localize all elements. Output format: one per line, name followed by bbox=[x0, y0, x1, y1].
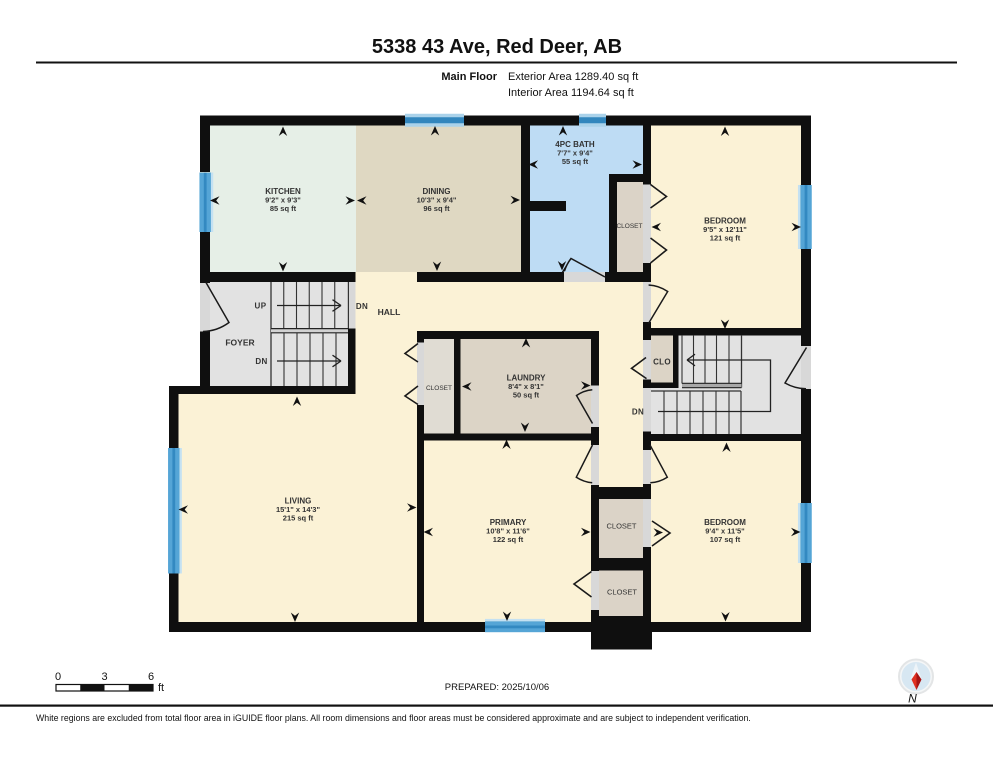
svg-text:96 sq ft: 96 sq ft bbox=[423, 204, 450, 213]
svg-text:3: 3 bbox=[101, 671, 107, 683]
svg-text:122 sq ft: 122 sq ft bbox=[493, 535, 524, 544]
svg-text:UP: UP bbox=[255, 302, 267, 311]
svg-text:DN: DN bbox=[255, 357, 267, 366]
svg-text:CLOSET: CLOSET bbox=[426, 385, 452, 392]
svg-text:White regions are excluded fro: White regions are excluded from total fl… bbox=[36, 713, 751, 723]
svg-text:Main Floor: Main Floor bbox=[441, 71, 497, 83]
svg-text:215 sq ft: 215 sq ft bbox=[283, 514, 314, 523]
svg-text:121 sq ft: 121 sq ft bbox=[710, 234, 741, 243]
svg-text:85 sq ft: 85 sq ft bbox=[270, 204, 297, 213]
svg-text:Exterior Area 1289.40 sq ft: Exterior Area 1289.40 sq ft bbox=[508, 71, 638, 83]
svg-text:ft: ft bbox=[158, 682, 164, 694]
svg-text:6: 6 bbox=[148, 671, 154, 683]
svg-text:PREPARED: 2025/10/06: PREPARED: 2025/10/06 bbox=[445, 682, 549, 693]
svg-text:0: 0 bbox=[55, 671, 61, 683]
svg-text:CLO: CLO bbox=[653, 358, 671, 367]
svg-text:CLOSET: CLOSET bbox=[606, 522, 636, 531]
svg-text:5338 43 Ave, Red Deer, AB: 5338 43 Ave, Red Deer, AB bbox=[372, 36, 622, 58]
svg-text:DN: DN bbox=[632, 408, 644, 417]
svg-text:CLOSET: CLOSET bbox=[607, 588, 637, 597]
svg-text:N: N bbox=[908, 692, 917, 706]
svg-text:FOYER: FOYER bbox=[225, 338, 254, 348]
svg-text:107 sq ft: 107 sq ft bbox=[710, 535, 741, 544]
svg-text:DN: DN bbox=[356, 302, 368, 311]
svg-text:HALL: HALL bbox=[378, 307, 401, 317]
svg-text:CLOSET: CLOSET bbox=[616, 223, 642, 230]
svg-text:Interior Area 1194.64 sq ft: Interior Area 1194.64 sq ft bbox=[508, 87, 634, 99]
svg-text:50 sq ft: 50 sq ft bbox=[513, 391, 540, 400]
svg-text:55 sq ft: 55 sq ft bbox=[562, 157, 589, 166]
